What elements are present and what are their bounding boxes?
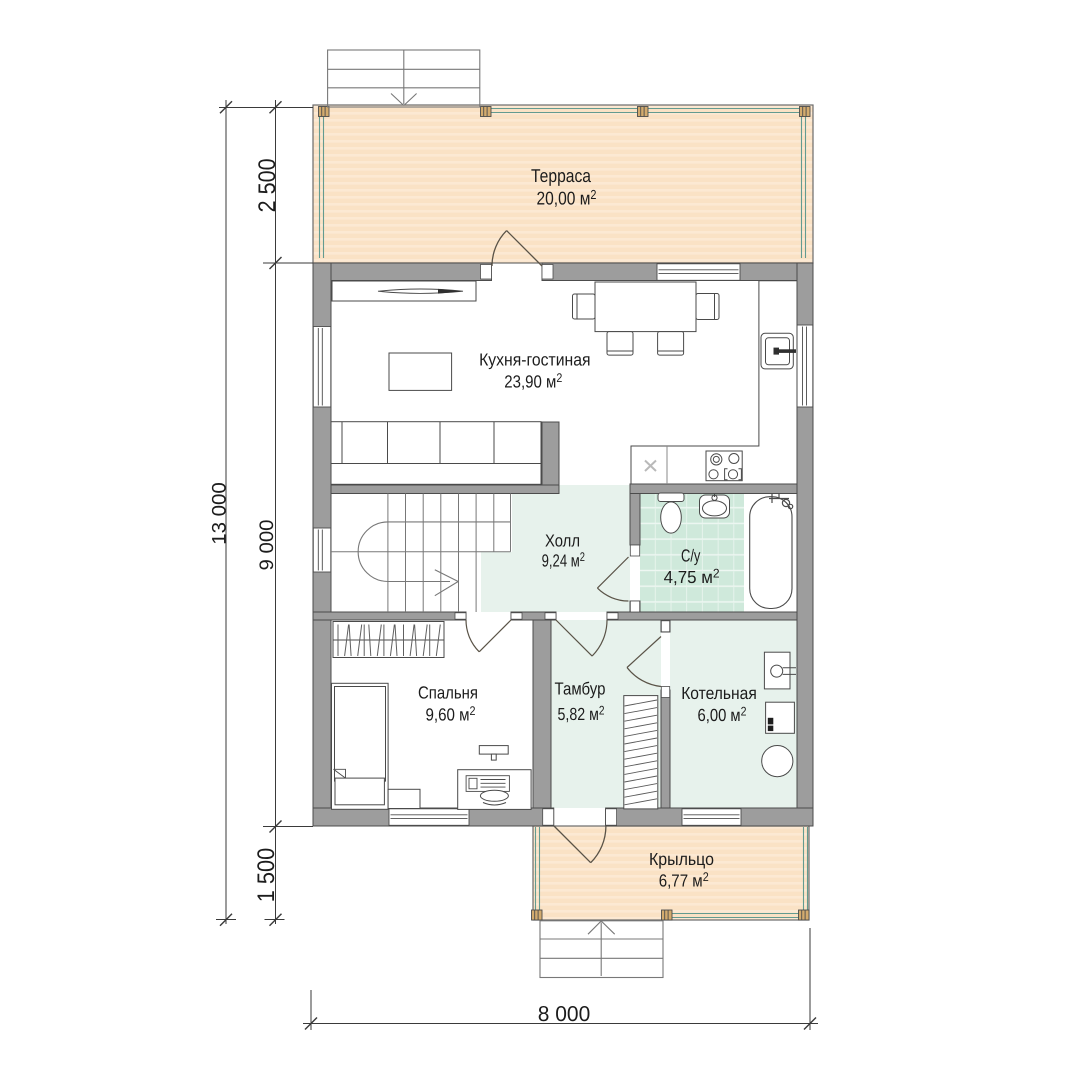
svg-text:9 000: 9 000 — [256, 519, 278, 570]
svg-text:Холл: Холл — [545, 531, 580, 551]
svg-text:4,75 м2: 4,75 м2 — [664, 567, 720, 588]
svg-text:Котельная: Котельная — [681, 683, 757, 703]
svg-text:9,60 м2: 9,60 м2 — [426, 704, 476, 725]
svg-text:Терраса: Терраса — [531, 165, 592, 186]
svg-text:Спальня: Спальня — [418, 683, 478, 703]
svg-text:6,77 м2: 6,77 м2 — [659, 870, 709, 891]
svg-text:Крыльцо: Крыльцо — [649, 849, 714, 869]
svg-text:Тамбур: Тамбур — [555, 679, 606, 699]
svg-text:8 000: 8 000 — [538, 1002, 591, 1026]
svg-text:23,90 м2: 23,90 м2 — [504, 371, 562, 392]
svg-text:С/у: С/у — [681, 546, 701, 566]
svg-text:Кухня-гостиная: Кухня-гостиная — [479, 350, 590, 370]
svg-text:20,00 м2: 20,00 м2 — [537, 187, 597, 209]
svg-text:5,82 м2: 5,82 м2 — [558, 704, 605, 725]
svg-text:2 500: 2 500 — [254, 158, 281, 212]
svg-text:13 000: 13 000 — [208, 482, 230, 545]
svg-text:1 500: 1 500 — [253, 848, 280, 903]
svg-text:6,00 м2: 6,00 м2 — [698, 705, 747, 726]
svg-text:9,24 м2: 9,24 м2 — [542, 550, 585, 571]
